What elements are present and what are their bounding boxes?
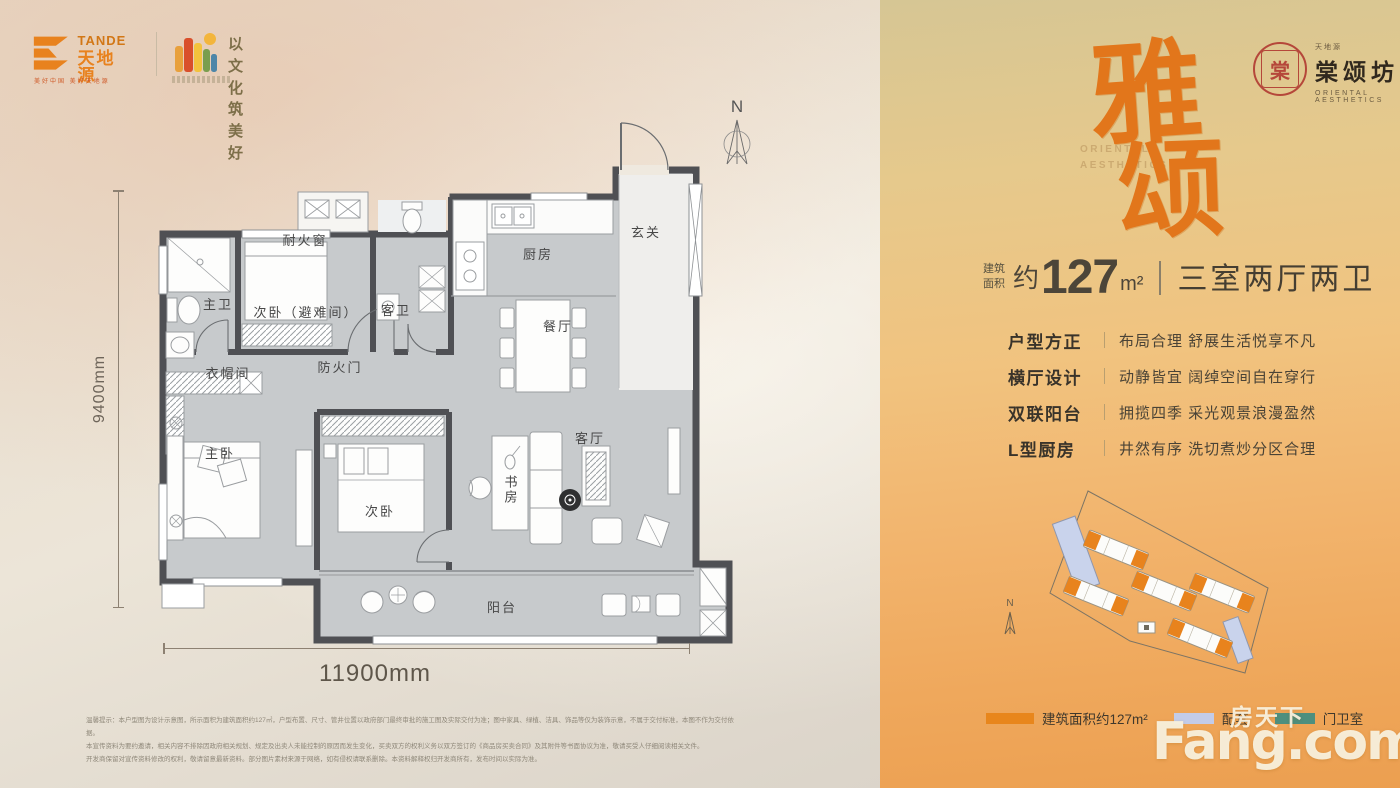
plan-compass-n: N	[731, 97, 743, 116]
feature-label: L型厨房	[1008, 436, 1090, 461]
residential-buildings	[1063, 530, 1255, 659]
tande-tagline: 美好中国 美好天地源	[34, 76, 110, 85]
disclaimer-line: 本宣传资料为要约邀请，相关内容不排除因政府相关规划、规定及出卖人未能控制的原因而…	[86, 740, 734, 753]
area-divider	[1159, 261, 1161, 295]
label-guest-bath: 客卫	[381, 303, 411, 318]
foyer-area	[619, 174, 693, 390]
poster: TANDE 天地源 美好中国 美好天地源 以文化 筑美好	[0, 0, 1400, 788]
gatehouse	[1138, 622, 1155, 633]
feature-separator	[1104, 440, 1105, 456]
upper-platform	[298, 192, 368, 232]
refuge-bedroom-furniture	[242, 242, 332, 346]
title-char-2: 颂	[1116, 139, 1225, 240]
dimension-line-horizontal	[163, 648, 690, 649]
entrance-door-arc	[621, 123, 668, 170]
feature-desc: 拥揽四季 采光观景浪漫盈然	[1119, 402, 1316, 423]
site-plan: N	[998, 474, 1298, 684]
label-living-room: 客厅	[575, 431, 605, 446]
feature-separator	[1104, 368, 1105, 384]
unit-title-calligraphy: 雅 颂	[1090, 42, 1224, 239]
sub-brand-parent: 天地源	[1315, 42, 1400, 52]
feature-desc: 井然有序 洗切煮炒分区合理	[1119, 438, 1316, 459]
tande-en: TANDE	[78, 34, 130, 47]
dining-furniture	[500, 300, 586, 392]
label-master-bath: 主卫	[203, 297, 233, 312]
area-value: 127	[1041, 256, 1118, 299]
disclaimer-line: 开发商保留对宣传资料修改的权利，敬请留意最新资料。部分图片素材来源于网络，如有侵…	[86, 753, 734, 766]
label-fire-window: 耐火窗	[282, 233, 327, 248]
site-compass-icon: N	[1005, 598, 1015, 634]
culture-city-icon	[172, 30, 222, 74]
feature-row: 横厅设计 动静皆宜 阔绰空间自在穿行	[1008, 358, 1316, 394]
feature-row: 户型方正 布局合理 舒展生活悦享不凡	[1008, 322, 1316, 358]
legend-item: 建筑面积约127m²	[986, 708, 1148, 728]
floor-plan: 主卫 耐火窗 次卧（避难间） 客卫 厨房 玄关 餐厅 防火门 衣帽间 主卧 次卧…	[140, 90, 760, 670]
plan-compass-icon: N	[724, 97, 750, 164]
header-divider	[156, 32, 157, 76]
site-compass-n: N	[1006, 598, 1013, 609]
label-kitchen: 厨房	[523, 247, 553, 262]
feature-row: L型厨房 井然有序 洗切煮炒分区合理	[1008, 430, 1316, 466]
dimension-line-vertical	[118, 190, 119, 608]
label-foyer: 玄关	[631, 225, 661, 240]
seal-character: 棠	[1255, 44, 1305, 94]
legend-label: 建筑面积约127m²	[1042, 708, 1148, 728]
disclaimer: 温馨提示：本户型图为设计示意图，所示面积为建筑面积约127㎡，户型布置、尺寸、管…	[86, 714, 734, 766]
culture-logo-caption	[172, 76, 230, 83]
dimension-height: 9400mm	[91, 344, 109, 434]
feature-label: 横厅设计	[1008, 364, 1090, 389]
feature-label: 双联阳台	[1008, 400, 1090, 425]
feature-row: 双联阳台 拥揽四季 采光观景浪漫盈然	[1008, 394, 1316, 430]
tande-logo-icon	[32, 34, 71, 74]
area-unit: m²	[1120, 273, 1143, 296]
sub-brand-en: ORIENTAL AESTHETICS	[1315, 90, 1400, 104]
area-prefix-line2: 面积	[983, 277, 1005, 292]
legend-swatch-orange	[986, 713, 1034, 724]
area-approx: 约	[1013, 258, 1039, 295]
label-refuge-bedroom: 次卧（避难间）	[253, 305, 358, 320]
feature-separator	[1104, 404, 1105, 420]
label-fire-door: 防火门	[317, 360, 362, 375]
feature-label: 户型方正	[1008, 328, 1090, 353]
label-second-bedroom: 次卧	[365, 504, 395, 519]
label-dining-room: 餐厅	[543, 319, 573, 334]
fang-watermark-en: Fang.com	[1152, 712, 1400, 772]
disclaimer-line: 温馨提示：本户型图为设计示意图，所示面积为建筑面积约127㎡，户型布置、尺寸、管…	[86, 714, 734, 740]
label-balcony: 阳台	[487, 600, 517, 615]
feature-desc: 布局合理 舒展生活悦享不凡	[1119, 330, 1316, 351]
label-study: 书房	[503, 475, 518, 505]
area-prefix: 建筑 面积	[983, 262, 1005, 292]
area-prefix-line1: 建筑	[983, 262, 1005, 277]
area-summary: 建筑 面积 约 127 m² 三室两厅两卫	[983, 254, 1375, 299]
sub-brand: 棠 天地源 棠颂坊 ORIENTAL AESTHETICS	[1253, 42, 1400, 104]
seal-icon: 棠	[1253, 42, 1307, 96]
equipment-platform	[700, 568, 726, 636]
feature-separator	[1104, 332, 1105, 348]
label-cloakroom: 衣帽间	[205, 366, 250, 381]
dimension-width: 11900mm	[280, 660, 470, 688]
sub-brand-text: 天地源 棠颂坊 ORIENTAL AESTHETICS	[1315, 42, 1400, 104]
feature-desc: 动静皆宜 阔绰空间自在穿行	[1119, 366, 1316, 387]
unit-layout: 三室两厅两卫	[1177, 254, 1375, 298]
sub-brand-name: 棠颂坊	[1315, 53, 1400, 87]
feature-list: 户型方正 布局合理 舒展生活悦享不凡 横厅设计 动静皆宜 阔绰空间自在穿行 双联…	[1008, 322, 1316, 466]
label-master-bedroom: 主卧	[205, 446, 235, 461]
